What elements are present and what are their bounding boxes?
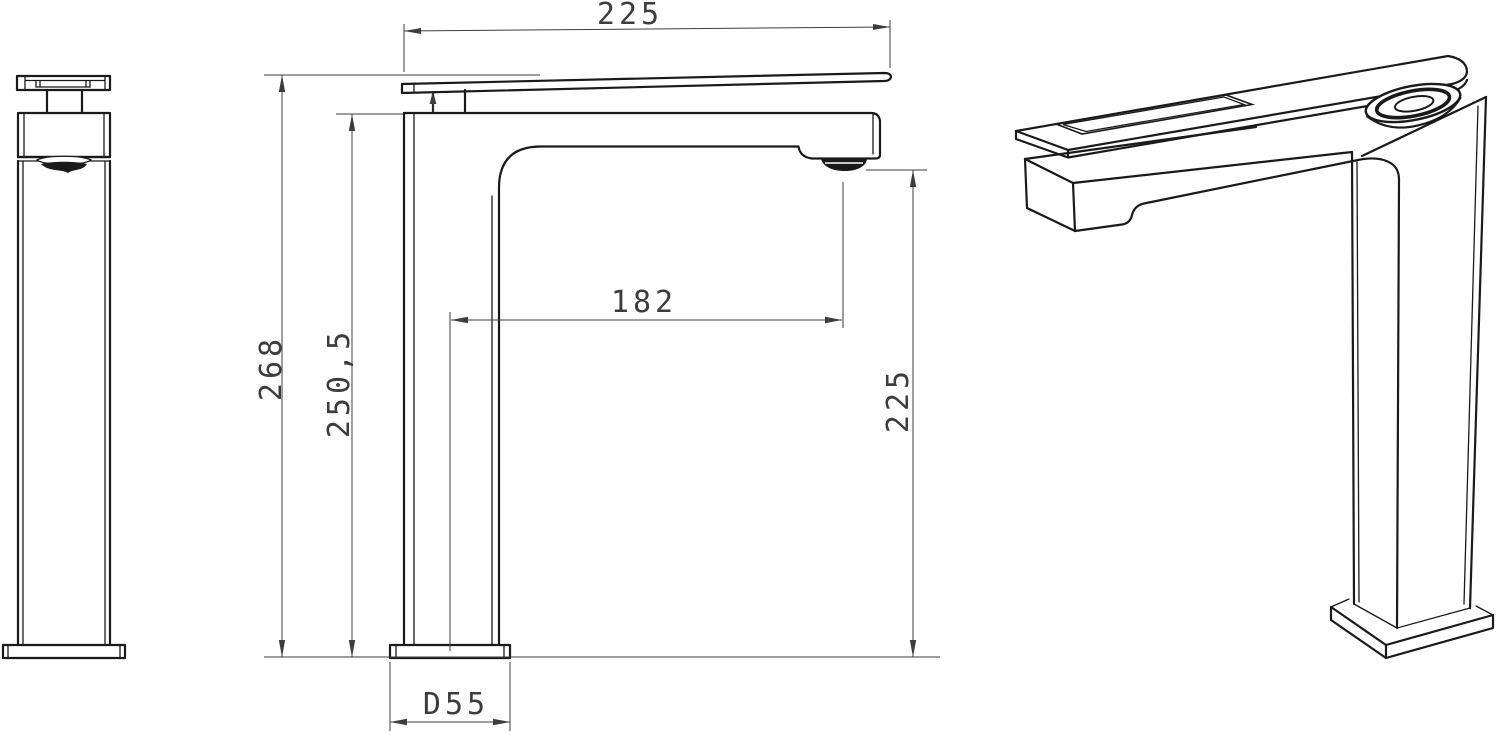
persp-column-corner-edge	[1397, 180, 1399, 628]
persp-arm-front-top-edge	[1073, 152, 1352, 183]
persp-column-right-edge	[1470, 97, 1486, 608]
side-aerator	[821, 159, 867, 171]
persp-arm-end-face	[1025, 159, 1075, 231]
dimension-label-outlet-height: 225	[881, 367, 916, 433]
technical-drawing-canvas: 225 268 250,5 182	[0, 0, 1500, 735]
persp-column-left-edge	[1352, 152, 1354, 604]
front-column-edges	[23, 161, 105, 645]
side-view	[390, 73, 891, 658]
front-base	[3, 645, 125, 658]
front-aerator	[41, 162, 87, 173]
dimension-label-spout-reach: 182	[611, 285, 677, 320]
persp-column-base-junction	[1354, 604, 1470, 628]
persp-plinth-top-front	[1331, 607, 1493, 645]
dimension-base-diameter: D55	[390, 662, 510, 731]
perspective-view	[1016, 56, 1493, 658]
front-lever-plate	[17, 76, 110, 90]
dimension-label-overall-height: 268	[254, 335, 289, 401]
side-body-inner-edges	[414, 114, 873, 645]
front-spout-body-edges	[24, 113, 104, 157]
persp-column-right-inner	[1464, 106, 1478, 604]
persp-column-left-inner	[1357, 162, 1359, 602]
faucet-three-view-drawing: 225 268 250,5 182	[0, 0, 1500, 735]
front-spout-body	[18, 113, 110, 157]
dimension-spout-top-length: 225	[404, 0, 890, 72]
dimension-outlet-height: 225	[866, 170, 927, 657]
side-neck	[433, 90, 465, 113]
persp-arm-underside-step	[1075, 158, 1399, 231]
dimension-spout-reach: 182	[451, 182, 843, 328]
front-view	[3, 76, 125, 658]
dimension-label-spout-top-length: 225	[597, 0, 663, 32]
dimension-label-spout-top-height: 250,5	[322, 328, 357, 438]
side-lever-plate	[402, 73, 891, 93]
front-neck	[47, 90, 82, 113]
dimensions: 225 268 250,5 182	[254, 0, 940, 731]
persp-plinth-top-back	[1331, 599, 1493, 615]
side-body-outline	[404, 113, 880, 645]
dimension-label-base-diameter: D55	[423, 687, 489, 722]
dimension-spout-top-height: 250,5	[322, 114, 404, 657]
dimension-overall-height: 268	[254, 75, 540, 657]
persp-plinth-bottom	[1331, 607, 1493, 658]
front-column	[18, 161, 110, 645]
